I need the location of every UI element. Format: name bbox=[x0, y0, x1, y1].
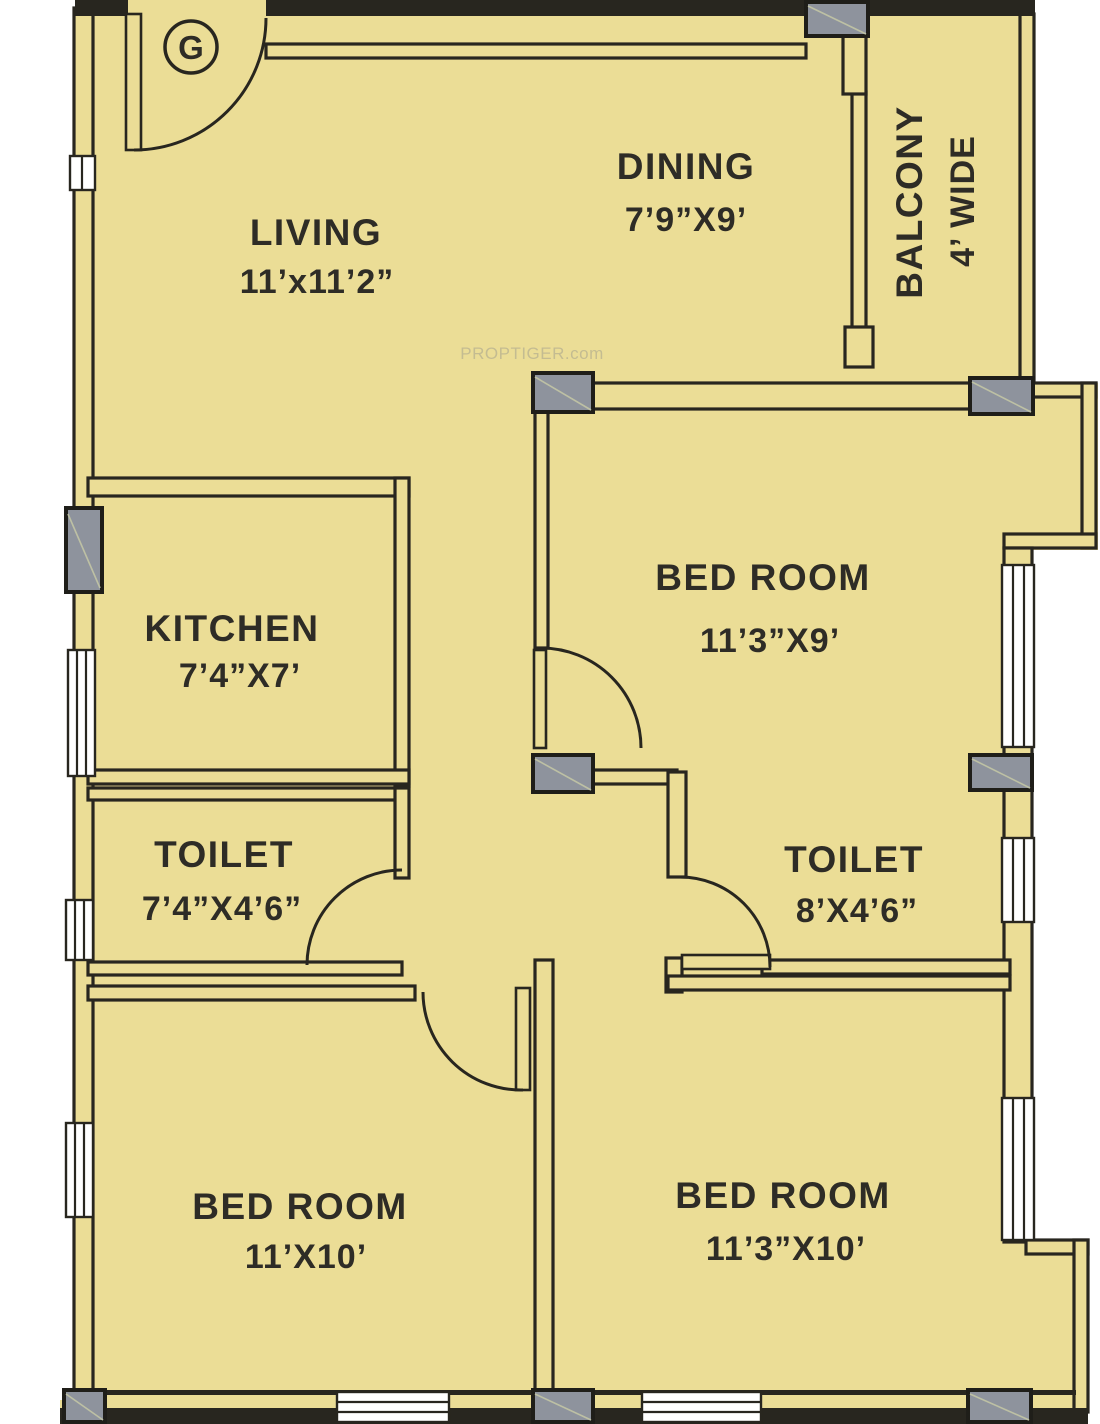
window bbox=[337, 1392, 449, 1422]
column bbox=[533, 755, 593, 792]
wall-segment bbox=[1004, 534, 1096, 548]
wall-segment bbox=[88, 986, 415, 1000]
wall-segment bbox=[585, 383, 978, 409]
wall-segment bbox=[88, 962, 402, 975]
room-dims-balcony: 4’ WIDE bbox=[944, 135, 982, 267]
column bbox=[968, 1390, 1031, 1422]
wall-segment bbox=[535, 960, 553, 1394]
room-label-bedroom-top-right: BED ROOM bbox=[655, 557, 871, 598]
wall-segment bbox=[1082, 383, 1096, 548]
room-dims-bedroom-bottom-right: 11’3”X10’ bbox=[706, 1230, 866, 1268]
column bbox=[970, 755, 1032, 790]
entrance-marker-label: G bbox=[178, 29, 204, 66]
wall-segment bbox=[266, 0, 1035, 16]
room-label-kitchen: KITCHEN bbox=[145, 608, 320, 649]
wall-segment bbox=[88, 788, 396, 800]
wall-segment bbox=[88, 770, 409, 784]
wall-segment bbox=[845, 327, 873, 367]
room-dims-bedroom-top-right: 11’3”X9’ bbox=[700, 622, 840, 660]
window bbox=[1002, 565, 1034, 747]
wall-segment bbox=[266, 44, 806, 58]
floor-plan-drawing: G LIVING 11’x11’2” DINING 7’9”X9’ BALCON… bbox=[0, 0, 1100, 1424]
room-dims-living: 11’x11’2” bbox=[240, 263, 395, 301]
wall-segment bbox=[585, 770, 677, 784]
window bbox=[1002, 838, 1034, 922]
room-dims-toilet-right: 8’X4’6” bbox=[796, 892, 918, 930]
room-label-bedroom-bottom-right: BED ROOM bbox=[675, 1175, 891, 1216]
room-dims-bedroom-bottom-left: 11’X10’ bbox=[245, 1238, 367, 1276]
room-label-dining: DINING bbox=[617, 146, 756, 187]
wall-segment bbox=[843, 36, 866, 94]
room-label-toilet-right: TOILET bbox=[784, 839, 924, 880]
window bbox=[66, 900, 93, 960]
window bbox=[1002, 1098, 1034, 1240]
column bbox=[533, 373, 593, 412]
column bbox=[806, 2, 868, 36]
wall-segment bbox=[852, 92, 866, 329]
wall-segment bbox=[395, 478, 409, 786]
wall-segment bbox=[1020, 14, 1034, 387]
wall-segment bbox=[75, 0, 128, 16]
window bbox=[68, 650, 95, 776]
room-dims-kitchen: 7’4”X7’ bbox=[179, 657, 301, 695]
wall-segment bbox=[1074, 1240, 1088, 1412]
wall-segment bbox=[668, 772, 686, 877]
wall-segment bbox=[762, 960, 1010, 974]
floor-plan: G LIVING 11’x11’2” DINING 7’9”X9’ BALCON… bbox=[0, 0, 1100, 1424]
column bbox=[66, 508, 102, 592]
column bbox=[533, 1390, 593, 1422]
wall-segment bbox=[668, 976, 1010, 990]
column bbox=[64, 1390, 105, 1422]
window bbox=[642, 1392, 761, 1422]
wall-segment bbox=[88, 478, 409, 496]
room-dims-toilet-left: 7’4”X4’6” bbox=[142, 890, 302, 928]
column bbox=[970, 378, 1033, 414]
room-label-toilet-left: TOILET bbox=[154, 834, 294, 875]
wall-segment bbox=[395, 788, 409, 878]
window bbox=[66, 1123, 93, 1217]
room-label-balcony: BALCONY bbox=[889, 105, 930, 298]
room-label-living: LIVING bbox=[250, 212, 382, 253]
room-label-bedroom-bottom-left: BED ROOM bbox=[192, 1186, 408, 1227]
room-dims-dining: 7’9”X9’ bbox=[625, 201, 747, 239]
window bbox=[70, 156, 95, 190]
wall-segment bbox=[535, 412, 548, 648]
watermark: PROPTIGER.com bbox=[460, 344, 603, 363]
